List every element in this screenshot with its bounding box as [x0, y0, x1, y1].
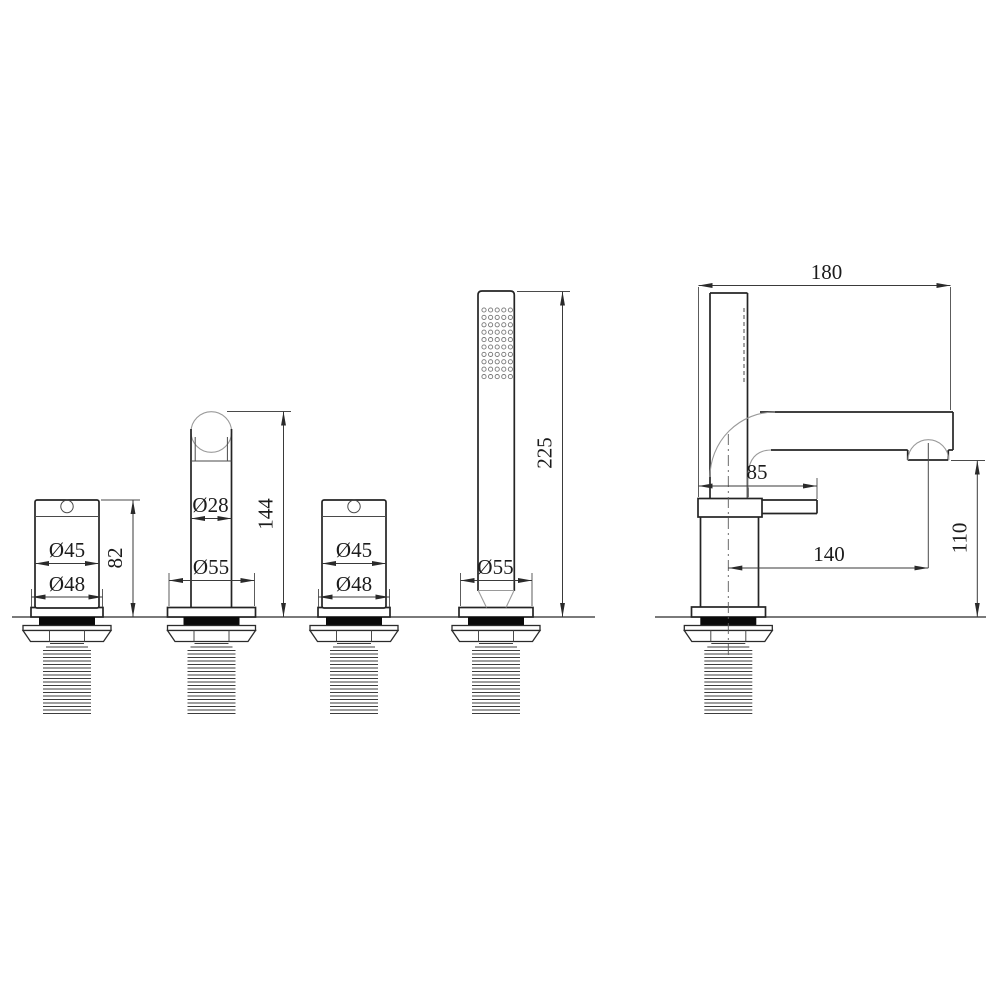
dim-side-spout-reach: 140 — [813, 542, 845, 566]
rubber-gasket — [39, 617, 95, 626]
side-elevation-view — [698, 293, 953, 656]
dimensions: Ø45 Ø48 82 Ø28 Ø55 144 Ø45 Ø48 Ø55 225 — [32, 260, 986, 617]
rubber-gasket — [326, 617, 382, 626]
dim-side-outlet-height: 110 — [948, 523, 972, 554]
threaded-shank — [330, 644, 378, 714]
fastener-assembly-side-view — [684, 607, 772, 714]
dim-handle-left-height: 82 — [103, 548, 127, 569]
dim-handle-left-dia-top: Ø45 — [49, 538, 85, 562]
spout-dock-ring — [191, 412, 232, 453]
dim-handle-left-dia-base: Ø48 — [49, 572, 85, 596]
dim-spout-height: 144 — [254, 498, 278, 530]
threaded-shank — [43, 644, 91, 714]
threaded-shank — [472, 644, 520, 714]
faucet-technical-drawing: Ø45 Ø48 82 Ø28 Ø55 144 Ø45 Ø48 Ø55 225 — [0, 0, 1000, 1000]
dim-side-lever-reach: 85 — [747, 460, 768, 484]
fastener-assembly-hand-shower — [452, 608, 540, 714]
dim-handle-right-dia-base: Ø48 — [336, 572, 372, 596]
fastener-assembly-spout — [168, 608, 256, 714]
dim-side-overall-depth: 180 — [811, 260, 843, 284]
dim-spout-dia-base: Ø55 — [193, 555, 229, 579]
technical-drawing-page: Ø45 Ø48 82 Ø28 Ø55 144 Ø45 Ø48 Ø55 225 — [0, 0, 1000, 1000]
dim-hand-shower-height: 225 — [533, 437, 557, 469]
dim-spout-dia-top: Ø28 — [192, 493, 228, 517]
dim-handle-right-dia-top: Ø45 — [336, 538, 372, 562]
fastener-assembly-handle-right — [310, 608, 398, 714]
spray-nozzle-dots — [482, 308, 513, 379]
threaded-shank — [188, 644, 236, 714]
valve-collar — [698, 499, 762, 518]
rubber-gasket — [184, 617, 240, 626]
fastener-assembly-handle-left — [23, 608, 111, 714]
dim-hand-shower-dia-base: Ø55 — [477, 555, 513, 579]
rubber-gasket — [468, 617, 524, 626]
lever-handle-side — [762, 500, 817, 514]
